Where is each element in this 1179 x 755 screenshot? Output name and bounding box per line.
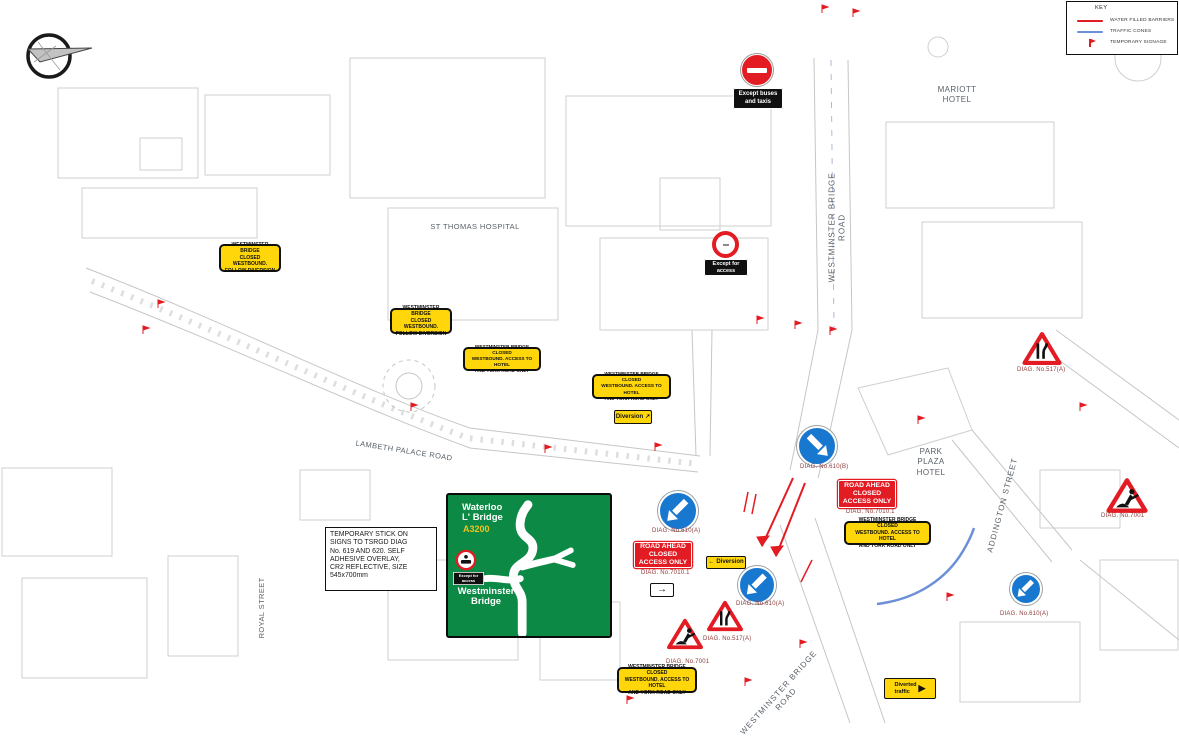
label-westminster-bridge-road-top: WESTMINSTER BRIDGE ROAD xyxy=(828,157,849,297)
keep-left-sign xyxy=(658,491,698,531)
no-motor-vehicles-icon xyxy=(455,549,477,571)
except-buses-plate: Except buses and taxis xyxy=(733,88,783,109)
except-access-plate: Except for access xyxy=(453,572,484,585)
temp-sign-closed-access-only: WESTMINSTER BRIDGE CLOSED WESTBOUND. ACC… xyxy=(592,374,671,399)
diag-ref-517a: DIAG. No.517(A) xyxy=(703,636,751,642)
temp-sign-closed-follow-diversion: WESTMINSTER BRIDGE CLOSED WESTBOUND. FOL… xyxy=(390,308,452,334)
diverted-traffic-sign: Diverted traffic ▶ xyxy=(884,678,936,699)
label-st-thomas-hospital: ST THOMAS HOSPITAL xyxy=(420,222,530,232)
road-narrows-sign xyxy=(706,599,744,633)
key-row-traffic-cones: TRAFFIC CONES xyxy=(1077,26,1177,37)
diag-ref-610a: DIAG. No.610(A) xyxy=(1000,611,1048,617)
destination-westminster-bridge: Westminster Bridge xyxy=(454,587,518,608)
road-narrows-sign xyxy=(1021,330,1063,367)
arrow-down-left-icon xyxy=(1012,575,1040,603)
diversion-label: Diversion xyxy=(716,559,743,566)
temp-sign-closed-access-only: WESTMINSTER BRIDGE CLOSED WESTBOUND. ACC… xyxy=(463,347,541,371)
arrow-ne-icon: ↗ xyxy=(645,414,650,421)
route-number: A3200 xyxy=(463,524,490,534)
keep-left-sign xyxy=(1010,573,1042,605)
map-key: KEY WATER FILLED BARRIERS TRAFFIC CONES … xyxy=(1066,1,1178,55)
key-row-water-filled-barriers: WATER FILLED BARRIERS xyxy=(1077,15,1177,26)
except-access-plate: Except for access xyxy=(704,259,748,276)
traffic-cones-icon xyxy=(1077,31,1103,33)
diag-ref-517a: DIAG. No.517(A) xyxy=(1017,367,1065,373)
no-vehicles-sign xyxy=(712,231,739,258)
roadworks-sign xyxy=(666,617,704,651)
diag-ref-7010: DIAG. No.7010.1 xyxy=(641,570,690,576)
note-box: TEMPORARY STICK ON SIGNS TO TSRGD DIAG N… xyxy=(325,527,437,591)
label-royal-street: ROYAL STREET xyxy=(257,568,267,648)
keep-right-sign xyxy=(797,426,837,466)
arrow-down-right-icon xyxy=(799,428,835,464)
flag-icon xyxy=(1077,39,1103,47)
roadworks-sign xyxy=(1105,476,1149,515)
label-park-plaza-hotel: PARK PLAZA HOTEL xyxy=(903,447,959,478)
arrow-right-plate: → xyxy=(650,583,674,597)
label-mariott-hotel: MARIOTT HOTEL xyxy=(922,85,992,106)
north-arrow-icon xyxy=(16,26,100,86)
diag-ref-610b: DIAG. No.610(B) xyxy=(800,464,848,470)
diag-ref-7001: DIAG. No.7001 xyxy=(1101,513,1144,519)
temp-sign-closed-follow-diversion: WESTMINSTER BRIDGE CLOSED WESTBOUND. FOL… xyxy=(219,244,281,272)
diag-ref-7001: DIAG. No.7001 xyxy=(666,659,709,665)
arrow-left-icon: ← xyxy=(708,559,714,566)
diversion-sign-ne: Diversion↗ xyxy=(614,410,652,424)
arrow-right-icon: → xyxy=(657,585,667,595)
key-label: WATER FILLED BARRIERS xyxy=(1110,18,1174,23)
green-direction-sign: Waterloo L' Bridge A3200 Except for acce… xyxy=(446,493,612,638)
water-filled-barriers-icon xyxy=(1077,20,1103,22)
road-ahead-closed-sign: ROAD AHEAD CLOSED ACCESS ONLY xyxy=(838,480,896,508)
diverted-traffic-label: Diverted traffic xyxy=(895,682,917,694)
road-ahead-closed-sign: ROAD AHEAD CLOSED ACCESS ONLY xyxy=(634,542,692,568)
arrow-down-left-icon xyxy=(660,493,696,529)
temp-sign-closed-access-only: WESTMINSTER BRIDGE CLOSED WESTBOUND. ACC… xyxy=(844,521,931,545)
diversion-label: Diversion xyxy=(616,414,643,421)
key-row-temporary-signage: TEMPORARY SIGNAGE xyxy=(1077,37,1177,48)
key-label: TRAFFIC CONES xyxy=(1110,29,1151,34)
key-title: KEY xyxy=(1095,5,1177,11)
diag-ref-610a: DIAG. No.610(A) xyxy=(652,528,700,534)
diag-ref-7010: DIAG. No.7010.1 xyxy=(846,509,895,515)
chevron-right-icon: ▶ xyxy=(919,684,926,694)
key-label: TEMPORARY SIGNAGE xyxy=(1110,40,1167,45)
destination-waterloo: Waterloo L' Bridge xyxy=(462,503,503,524)
temp-sign-closed-access-only: WESTMINSTER BRIDGE CLOSED WESTBOUND. ACC… xyxy=(617,667,697,693)
temporary-signage-markers xyxy=(143,5,1086,704)
arrow-down-left-icon xyxy=(740,568,774,602)
traffic-management-plan: { "legend": { "title": "KEY", "items": [… xyxy=(0,0,1179,723)
no-entry-sign xyxy=(741,54,773,86)
